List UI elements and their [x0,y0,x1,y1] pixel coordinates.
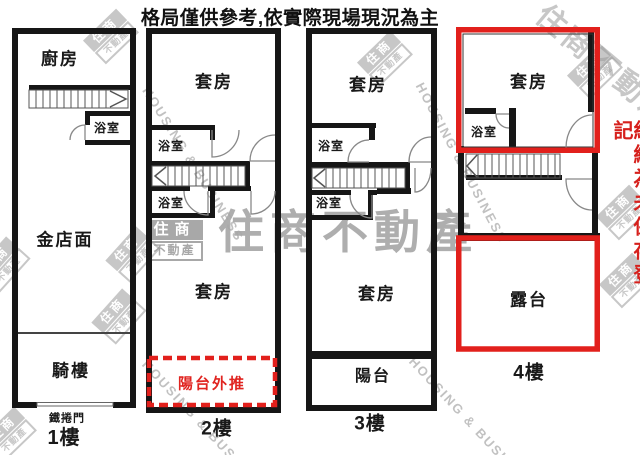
bath-door-arc [496,114,509,128]
bath-door-arc [184,191,208,215]
balcony-extension-note: 陽台外推 [178,377,246,392]
entry-door-arc [566,115,592,148]
shop-arcade-divider [18,332,130,334]
room-label-kitchen: 廚房 [41,51,79,68]
floor-plan-sheet: 住商不動產 住商 不動產 HOUSING & BUSINESS HOUSING … [0,0,640,455]
room-label-bath: 浴室 [318,140,344,152]
room-label-suite: 套房 [195,74,233,91]
rolling-door-line [37,403,113,407]
room-label-suite: 套房 [510,74,548,91]
room-label-suite: 套房 [349,77,387,94]
room-label-balcony: 陽台 [355,369,391,385]
floor-2-label: 2樓 [201,420,233,439]
floor-1-walls [12,28,136,408]
floor-3-stairs [312,168,405,188]
room-label-suite: 套房 [358,286,396,303]
floor-2-doors [184,130,275,215]
stairs-direction-arrow [314,169,325,187]
room-label-bath: 浴室 [316,197,342,209]
stairs-direction-arrow [110,91,126,107]
bath-door-arc [212,130,239,157]
disclaimer-title: 格局僅供參考,依實際現場現況為主 [140,3,440,30]
room-label-terrace: 露台 [510,292,548,309]
floor-1-doors [70,125,85,140]
floor-2-stairs [152,166,245,186]
room-label-suite: 套房 [195,284,233,301]
floor-1-stairs [29,90,128,108]
room-label-shop: 金店面 [37,232,94,249]
entry-door-arc [250,135,275,161]
entry-door-arc [409,137,431,162]
room-label-bath: 浴室 [158,197,184,209]
floor-4-label: 4樓 [513,364,545,383]
floor-1-plan-lines [12,28,136,408]
stairs-direction-arrow [467,155,477,177]
entry-door-arc [415,168,431,192]
floor-1-label: 1樓 [47,428,80,448]
rolling-door-label: 鐵捲門 [49,414,85,425]
bath-door-arc [348,140,369,162]
brand-stamp: 住商 不動產 [0,407,37,455]
room-label-bath: 浴室 [158,140,184,152]
entry-door-arc [251,191,275,214]
landing-door-arc [566,179,592,210]
floor-4-stairs [466,154,560,178]
floor-3-label: 3樓 [354,415,386,434]
bath-door-arc [70,125,85,140]
room-label-bath: 浴室 [471,126,497,138]
red-line-legend-note: 紅線為未保存登記 [611,120,640,300]
stairs-direction-arrow [155,167,166,185]
room-label-bath: 浴室 [94,122,120,134]
floor-1-plan [12,28,136,408]
room-label-arcade: 騎樓 [52,363,90,380]
